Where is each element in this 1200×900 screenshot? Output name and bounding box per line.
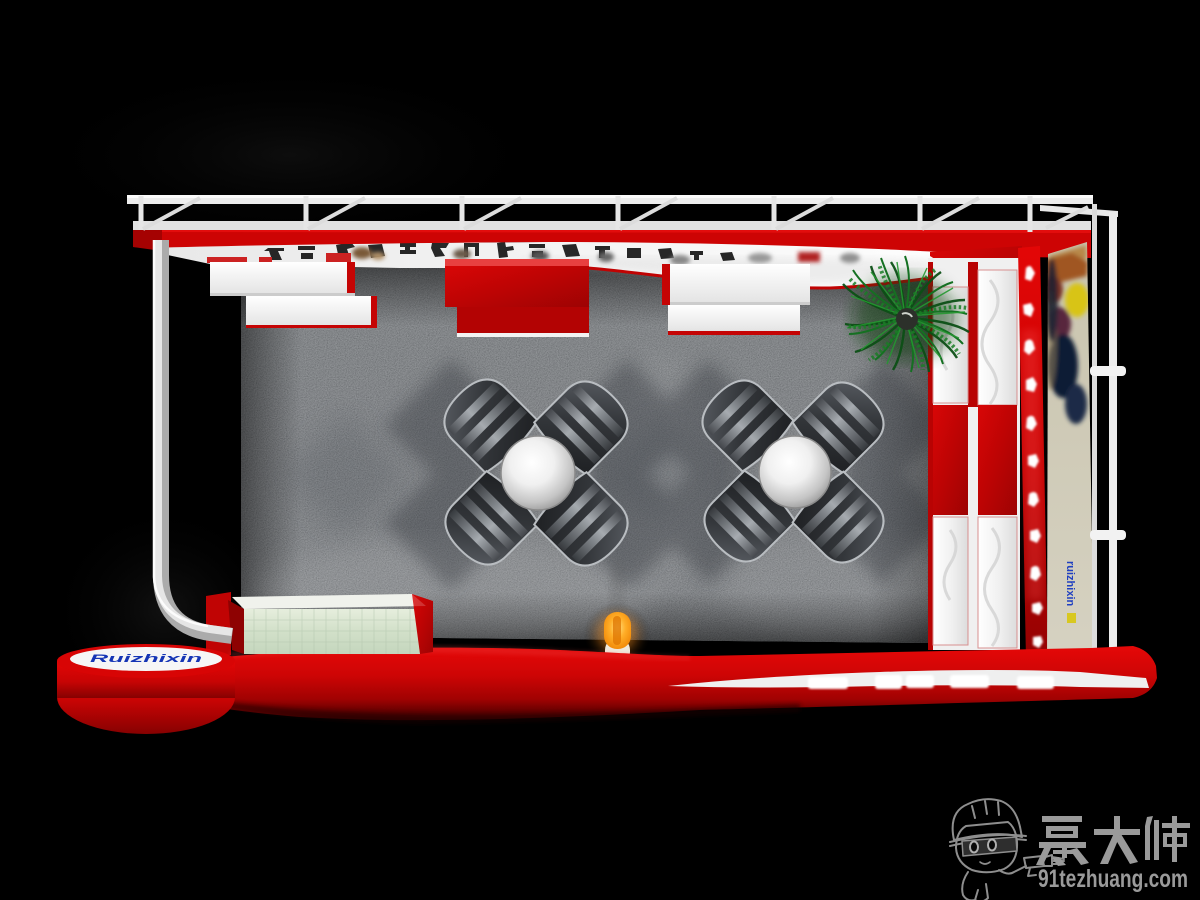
svg-text:ruizhixin: ruizhixin bbox=[1064, 561, 1076, 607]
svg-text:Ruizhixin: Ruizhixin bbox=[90, 653, 203, 665]
svg-text:91tezhuang.com: 91tezhuang.com bbox=[1038, 865, 1188, 893]
